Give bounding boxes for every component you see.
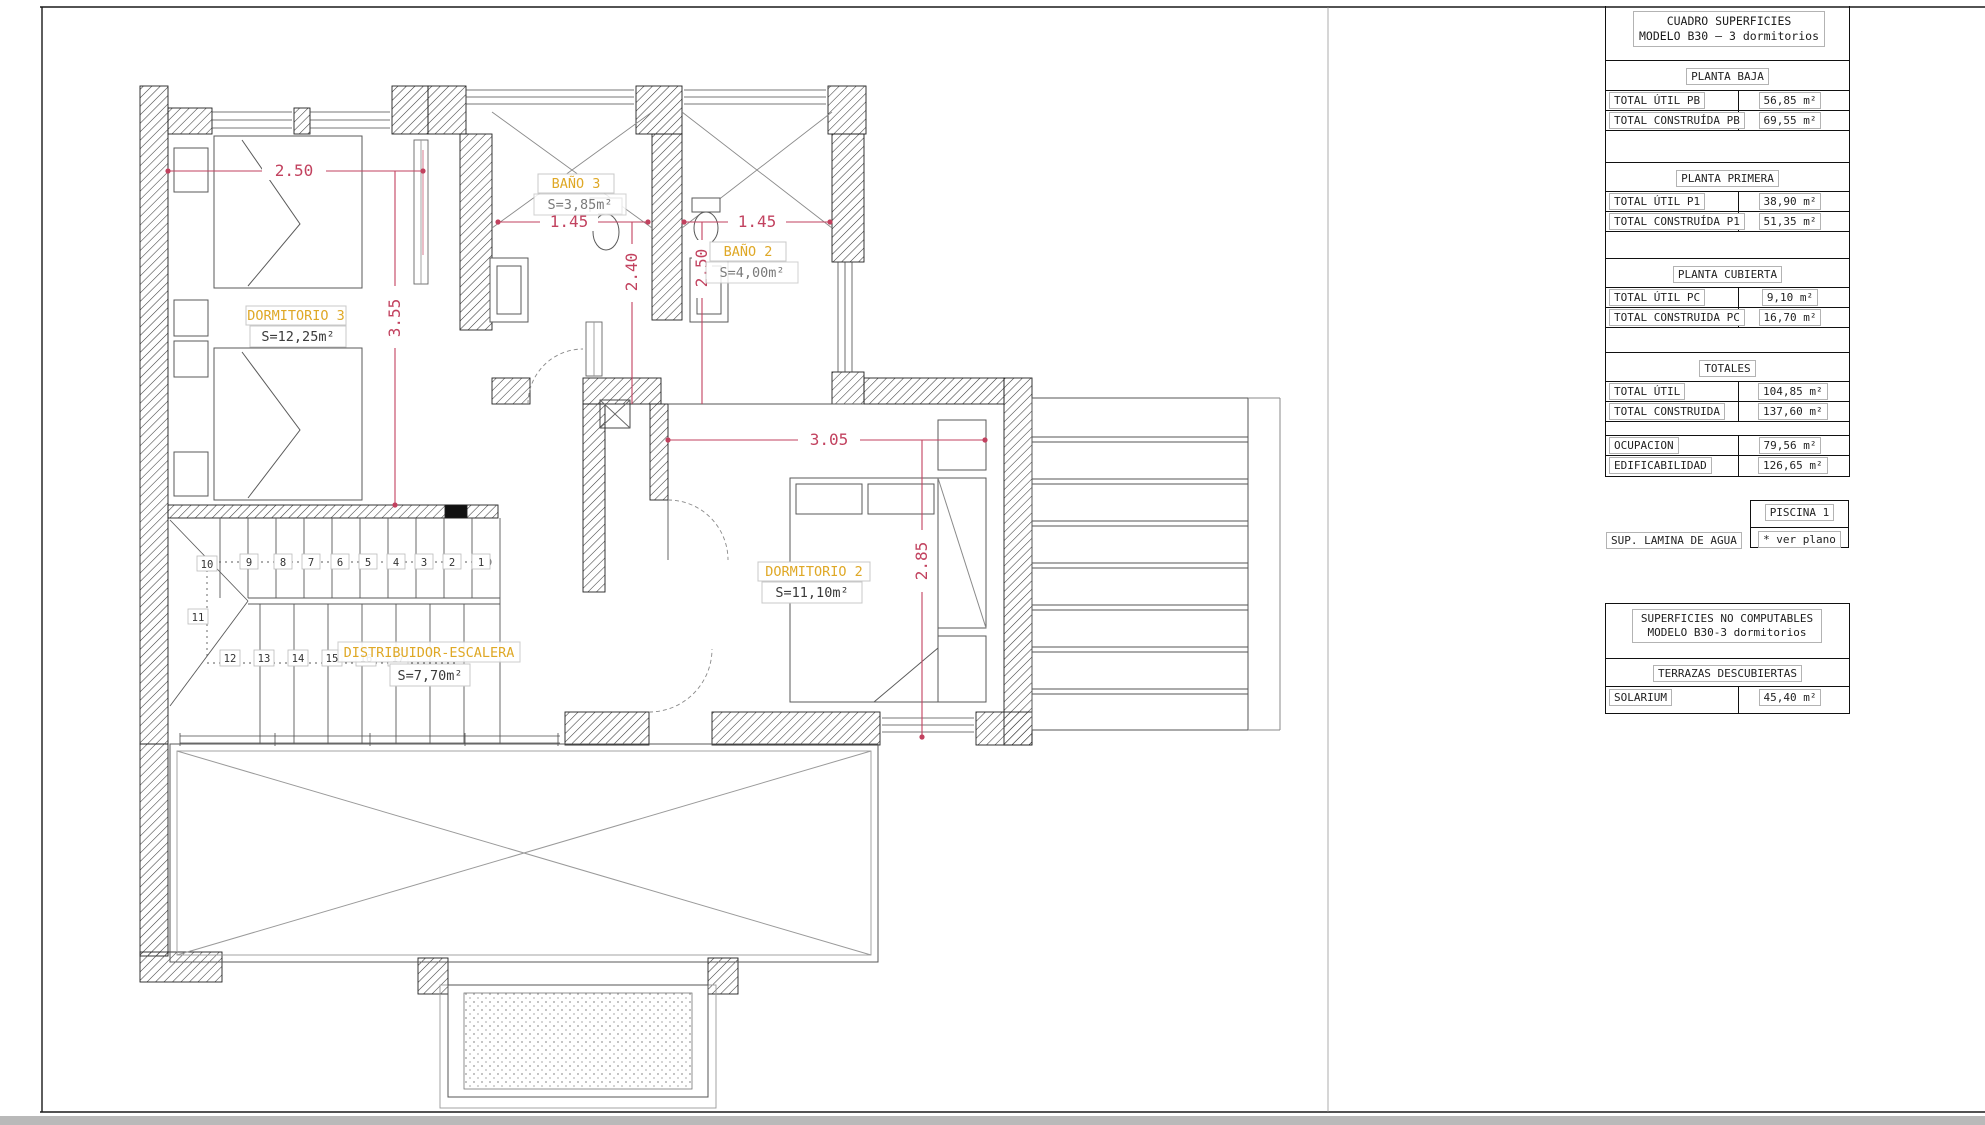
- room-label-bano-3: BAÑO 3: [552, 175, 601, 192]
- row-value: 56,85 m²: [1759, 92, 1822, 109]
- horizontal-scrollbar[interactable]: [0, 1116, 1985, 1125]
- table-row: TOTAL CONSTRUÍDA P1 51,35 m²: [1606, 211, 1849, 232]
- section-title-text: PLANTA BAJA: [1686, 68, 1769, 85]
- stair-number: 2: [449, 557, 455, 569]
- section-title-text: PLANTA PRIMERA: [1676, 170, 1779, 187]
- piscina-title: PISCINA 1: [1765, 504, 1835, 521]
- room-label-dormitorio-2: DORMITORIO 2: [765, 564, 863, 580]
- row-label: TOTAL ÚTIL PB: [1609, 92, 1705, 109]
- stair-number: 5: [365, 557, 371, 569]
- row-label: TOTAL CONSTRUÍDA P1: [1609, 213, 1745, 230]
- pool-group: [440, 985, 716, 1108]
- room-area-bano-3: S=3,85m²: [547, 197, 612, 213]
- row-value: 69,55 m²: [1759, 112, 1822, 129]
- room-label-dormitorio-3: DORMITORIO 3: [247, 308, 345, 324]
- row-label: SOLARIUM: [1609, 689, 1672, 706]
- piscina-label-text: SUP. LAMINA DE AGUA: [1606, 532, 1742, 549]
- table-row: TOTAL CONSTRUÍDA PB 69,55 m²: [1606, 110, 1849, 131]
- table-title-line1: CUADRO SUPERFICIES: [1634, 14, 1824, 29]
- no-computables-title-line1: SUPERFICIES NO COMPUTABLES: [1633, 612, 1821, 626]
- terrace-group: [170, 744, 878, 962]
- section-title-text: TOTALES: [1699, 360, 1755, 377]
- stair-number: 8: [280, 557, 286, 569]
- surfaces-table-main: CUADRO SUPERFICIES MODELO B30 – 3 dormit…: [1605, 6, 1850, 477]
- dim-label-dorm3-depth: 3.55: [385, 299, 404, 338]
- row-value: 9,10 m²: [1762, 289, 1818, 306]
- row-value: 104,85 m²: [1758, 383, 1828, 400]
- room-area-distribuidor: S=7,70m²: [397, 668, 462, 684]
- row-value: 51,35 m²: [1759, 213, 1822, 230]
- row-value: 137,60 m²: [1758, 403, 1828, 420]
- table-row-edificabilidad: EDIFICABILIDAD 126,65 m²: [1606, 455, 1849, 476]
- row-value: 45,40 m²: [1759, 689, 1822, 706]
- stair-number: 14: [292, 653, 305, 665]
- row-label: TOTAL ÚTIL P1: [1609, 193, 1705, 210]
- table-title: CUADRO SUPERFICIES MODELO B30 – 3 dormit…: [1633, 11, 1825, 47]
- row-value: 79,56 m²: [1759, 437, 1822, 454]
- stair-number: 9: [246, 557, 252, 569]
- pergola-group: [1032, 398, 1280, 730]
- row-label: OCUPACION: [1609, 437, 1679, 454]
- section-title-planta-baja: PLANTA BAJA: [1606, 65, 1849, 85]
- row-value: 16,70 m²: [1759, 309, 1822, 326]
- piscina-table: PISCINA 1 * ver plano: [1750, 500, 1849, 548]
- dim-label-top-width: 2.50: [275, 161, 314, 180]
- stair-number: 6: [337, 557, 343, 569]
- no-computables-table: SUPERFICIES NO COMPUTABLES MODELO B30-3 …: [1605, 603, 1850, 714]
- stair-number: 13: [258, 653, 271, 665]
- no-computables-title: SUPERFICIES NO COMPUTABLES MODELO B30-3 …: [1632, 609, 1822, 643]
- stair-number: 7: [308, 557, 314, 569]
- row-label: TOTAL CONSTRUÍDA PB: [1609, 112, 1745, 129]
- row-label: TOTAL ÚTIL: [1609, 383, 1685, 400]
- dim-label-dorm2-depth: 2.85: [912, 542, 931, 581]
- piscina-value: * ver plano: [1758, 531, 1841, 548]
- row-label: TOTAL CONSTRUIDA: [1609, 403, 1725, 420]
- dim-label-bath2-width: 1.45: [738, 212, 777, 231]
- stairs-group: [170, 518, 500, 744]
- piscina-label: SUP. LAMINA DE AGUA: [1606, 529, 1742, 549]
- stair-number: 12: [224, 653, 237, 665]
- stair-number: 10: [201, 559, 214, 571]
- section-title-planta-primera: PLANTA PRIMERA: [1606, 167, 1849, 187]
- drawing-sheet: 1 2 3 4 5 6 7 8 9 10 11 12 13 14 15 16 1…: [0, 0, 1985, 1125]
- section-title-planta-cubierta: PLANTA CUBIERTA: [1606, 263, 1849, 283]
- room-area-dormitorio-2: S=11,10m²: [775, 585, 848, 601]
- stair-number: 3: [421, 557, 427, 569]
- room-area-dormitorio-3: S=12,25m²: [261, 329, 334, 345]
- section-title-totales: TOTALES: [1606, 357, 1849, 377]
- table-row: TOTAL CONSTRUIDA PC 16,70 m²: [1606, 307, 1849, 328]
- stair-number: 11: [192, 612, 205, 624]
- stair-number: 15: [326, 653, 339, 665]
- stair-number: 1: [478, 557, 484, 569]
- row-label: TOTAL CONSTRUIDA PC: [1609, 309, 1745, 326]
- room-area-bano-2: S=4,00m²: [719, 265, 784, 281]
- stair-number: 4: [393, 557, 399, 569]
- table-row: TOTAL ÚTIL 104,85 m²: [1606, 381, 1849, 402]
- dim-label-dorm2-width: 3.05: [810, 430, 849, 449]
- table-row: TOTAL ÚTIL P1 38,90 m²: [1606, 191, 1849, 212]
- section-title-text: PLANTA CUBIERTA: [1673, 266, 1782, 283]
- table-row-ocupacion: OCUPACION 79,56 m²: [1606, 435, 1849, 456]
- table-row: TOTAL ÚTIL PC 9,10 m²: [1606, 287, 1849, 308]
- dim-label-bath3-depth: 2.40: [622, 253, 641, 292]
- room-label-distribuidor: DISTRIBUIDOR-ESCALERA: [344, 645, 515, 661]
- table-row: TOTAL ÚTIL PB 56,85 m²: [1606, 90, 1849, 111]
- row-label: TOTAL ÚTIL PC: [1609, 289, 1705, 306]
- terrazas-subtitle: TERRAZAS DESCUBIERTAS: [1653, 665, 1802, 682]
- table-title-line2: MODELO B30 – 3 dormitorios: [1634, 29, 1824, 44]
- table-row: TOTAL CONSTRUIDA 137,60 m²: [1606, 401, 1849, 422]
- row-value: 38,90 m²: [1759, 193, 1822, 210]
- row-label: EDIFICABILIDAD: [1609, 457, 1712, 474]
- table-row-solarium: SOLARIUM 45,40 m²: [1606, 686, 1849, 713]
- no-computables-title-line2: MODELO B30-3 dormitorios: [1633, 626, 1821, 640]
- room-label-bano-2: BAÑO 2: [724, 243, 773, 260]
- row-value: 126,65 m²: [1758, 457, 1828, 474]
